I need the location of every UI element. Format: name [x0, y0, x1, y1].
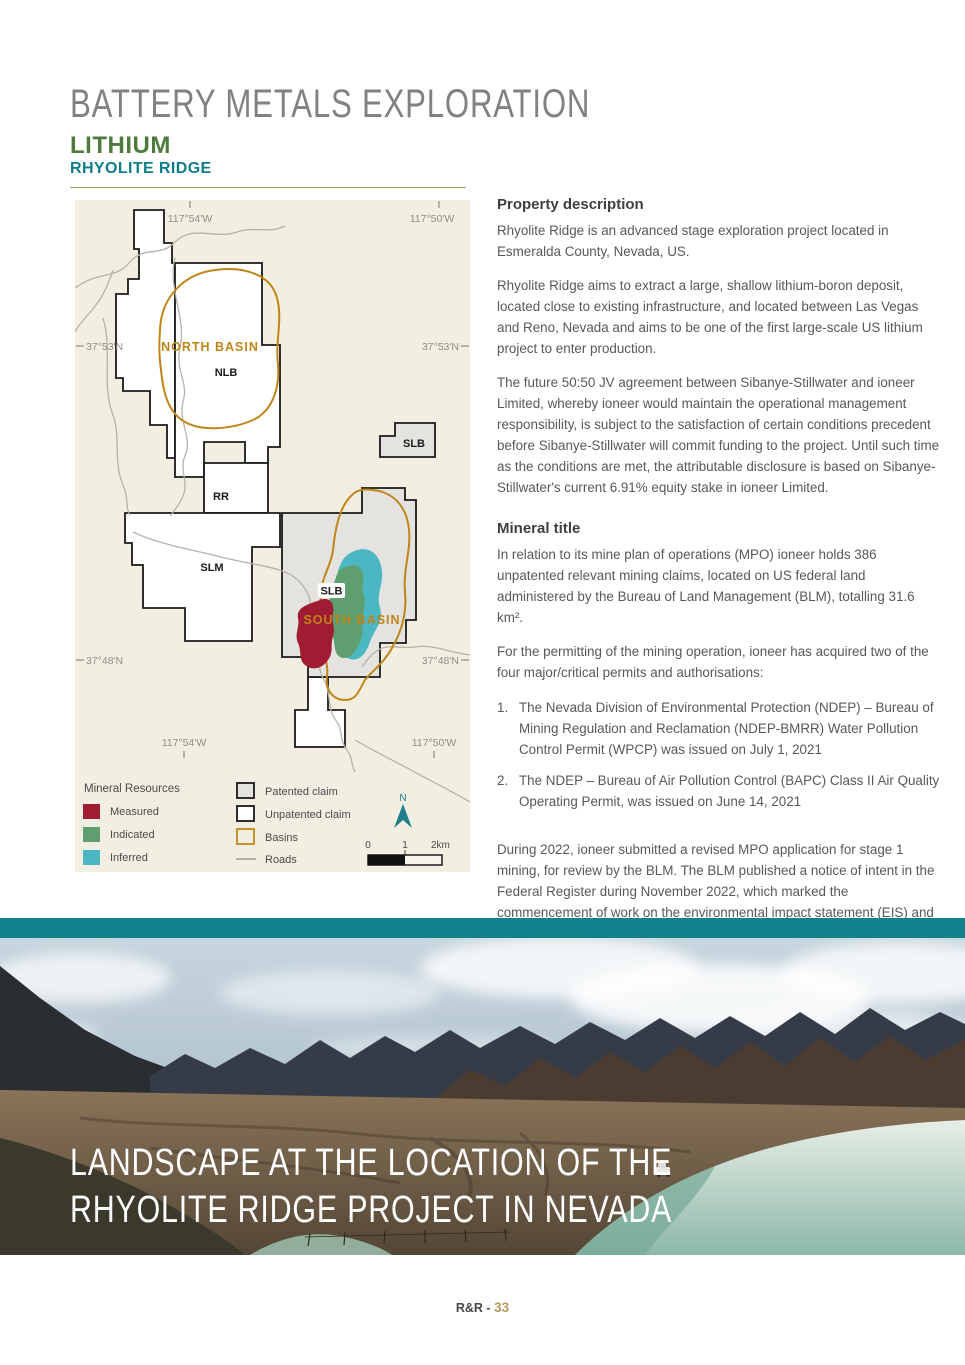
property-description-p3: The future 50:50 JV agreement between Si… [497, 372, 940, 498]
lat48-label-west: 37°48'N [86, 655, 123, 667]
lon-label-top-west: 117°54'W [168, 213, 213, 225]
north-letter: N [399, 793, 406, 804]
claims-map-figure: 117°54'W 117°50'W [75, 200, 470, 872]
legend-title: Mineral Resources [84, 783, 180, 795]
lon-label-top-east: 117°50'W [410, 213, 455, 225]
page-footer: R&R - 33 [0, 1300, 965, 1315]
indicated-swatch [83, 827, 100, 842]
unpatented-swatch [237, 806, 254, 821]
measured-area [297, 599, 334, 669]
roads-label: Roads [265, 854, 297, 866]
lon-label-bottom-west: 117°54'W [162, 737, 207, 749]
footer-report-label: R&R - [456, 1301, 491, 1315]
basins-label: Basins [265, 832, 299, 844]
unpatented-label: Unpatented claim [265, 809, 351, 821]
lon-label-bottom-east: 117°50'W [412, 737, 457, 749]
property-description-p2: Rhyolite Ridge aims to extract a large, … [497, 275, 940, 359]
slm-label: SLM [200, 562, 223, 574]
scale-two: 2km [431, 840, 450, 851]
mineral-title-heading: Mineral title [497, 520, 940, 537]
permit-item-2: The NDEP – Bureau of Air Pollution Contr… [519, 770, 940, 812]
section-gap [497, 511, 940, 520]
measured-swatch [83, 804, 100, 819]
mineral-title-p2: For the permitting of the mining operati… [497, 641, 940, 683]
nlb-label: NLB [215, 367, 238, 379]
south-basin-label: SOUTH BASIN [303, 613, 400, 627]
lat48-label-east: 37°48'N [422, 655, 459, 667]
scale-zero: 0 [365, 840, 371, 851]
patented-label: Patented claim [265, 786, 338, 798]
permit-item-1: The Nevada Division of Environmental Pro… [519, 697, 940, 760]
report-page: BATTERY METALS EXPLORATION LITHIUM RHYOL… [0, 0, 965, 1365]
scale-bar-filled [368, 855, 405, 865]
measured-label: Measured [110, 806, 159, 818]
property-description-heading: Property description [497, 196, 940, 213]
photo-caption: LANDSCAPE AT THE LOCATION OF THE RHYOLIT… [70, 1140, 672, 1234]
permits-list: The Nevada Division of Environmental Pro… [497, 697, 940, 812]
slb-south-label: SLB [321, 586, 343, 598]
photo-caption-line1: LANDSCAPE AT THE LOCATION OF THE [70, 1140, 672, 1187]
teal-divider-band [0, 918, 965, 938]
commodity-heading: LITHIUM [70, 132, 171, 160]
slb-ne-label: SLB [403, 438, 425, 450]
patented-swatch [237, 783, 254, 798]
inferred-swatch [83, 850, 100, 865]
indicated-label: Indicated [110, 829, 155, 841]
scale-one: 1 [402, 840, 408, 851]
lat53-label-east: 37°53'N [422, 341, 459, 353]
claim-rr-corridor [204, 463, 268, 513]
rr-label: RR [213, 491, 229, 503]
footer-page-number: 33 [494, 1300, 509, 1315]
lat53-label-west: 37°53'N [86, 341, 123, 353]
claims-map: 117°54'W 117°50'W [75, 200, 470, 872]
project-heading: RHYOLITE RIDGE [70, 160, 212, 178]
property-description-p1: Rhyolite Ridge is an advanced stage expl… [497, 220, 940, 262]
photo-caption-line2: RHYOLITE RIDGE PROJECT IN NEVADA [70, 1187, 672, 1234]
mineral-title-p1: In relation to its mine plan of operatio… [497, 544, 940, 628]
inferred-label: Inferred [110, 852, 148, 864]
page-title: BATTERY METALS EXPLORATION [70, 82, 590, 127]
north-basin-label: NORTH BASIN [161, 340, 259, 354]
gold-divider [70, 187, 466, 188]
text-column: Property description Rhyolite Ridge is a… [497, 196, 940, 1020]
